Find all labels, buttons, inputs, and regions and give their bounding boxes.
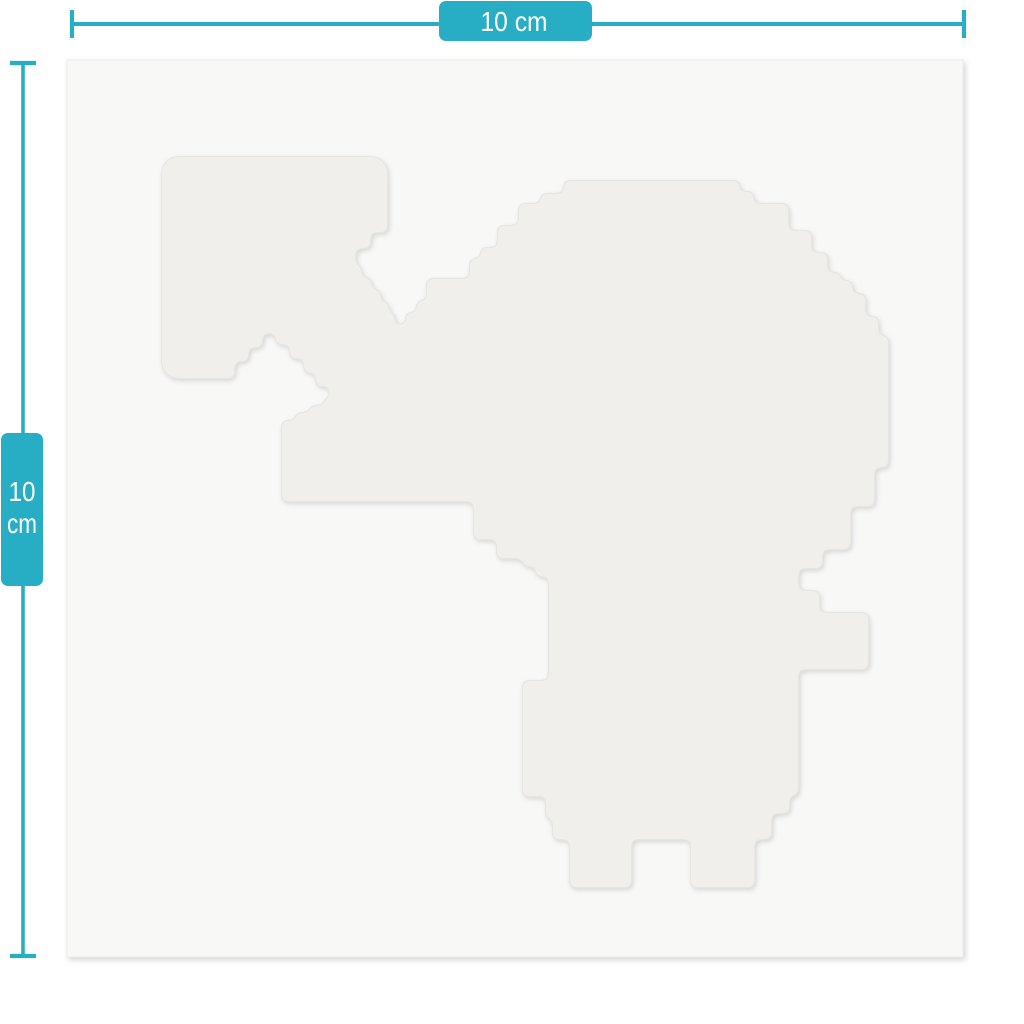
svg-text:10 cm: 10 cm xyxy=(481,6,548,37)
svg-text:10: 10 xyxy=(9,476,36,507)
svg-text:cm: cm xyxy=(7,508,37,539)
